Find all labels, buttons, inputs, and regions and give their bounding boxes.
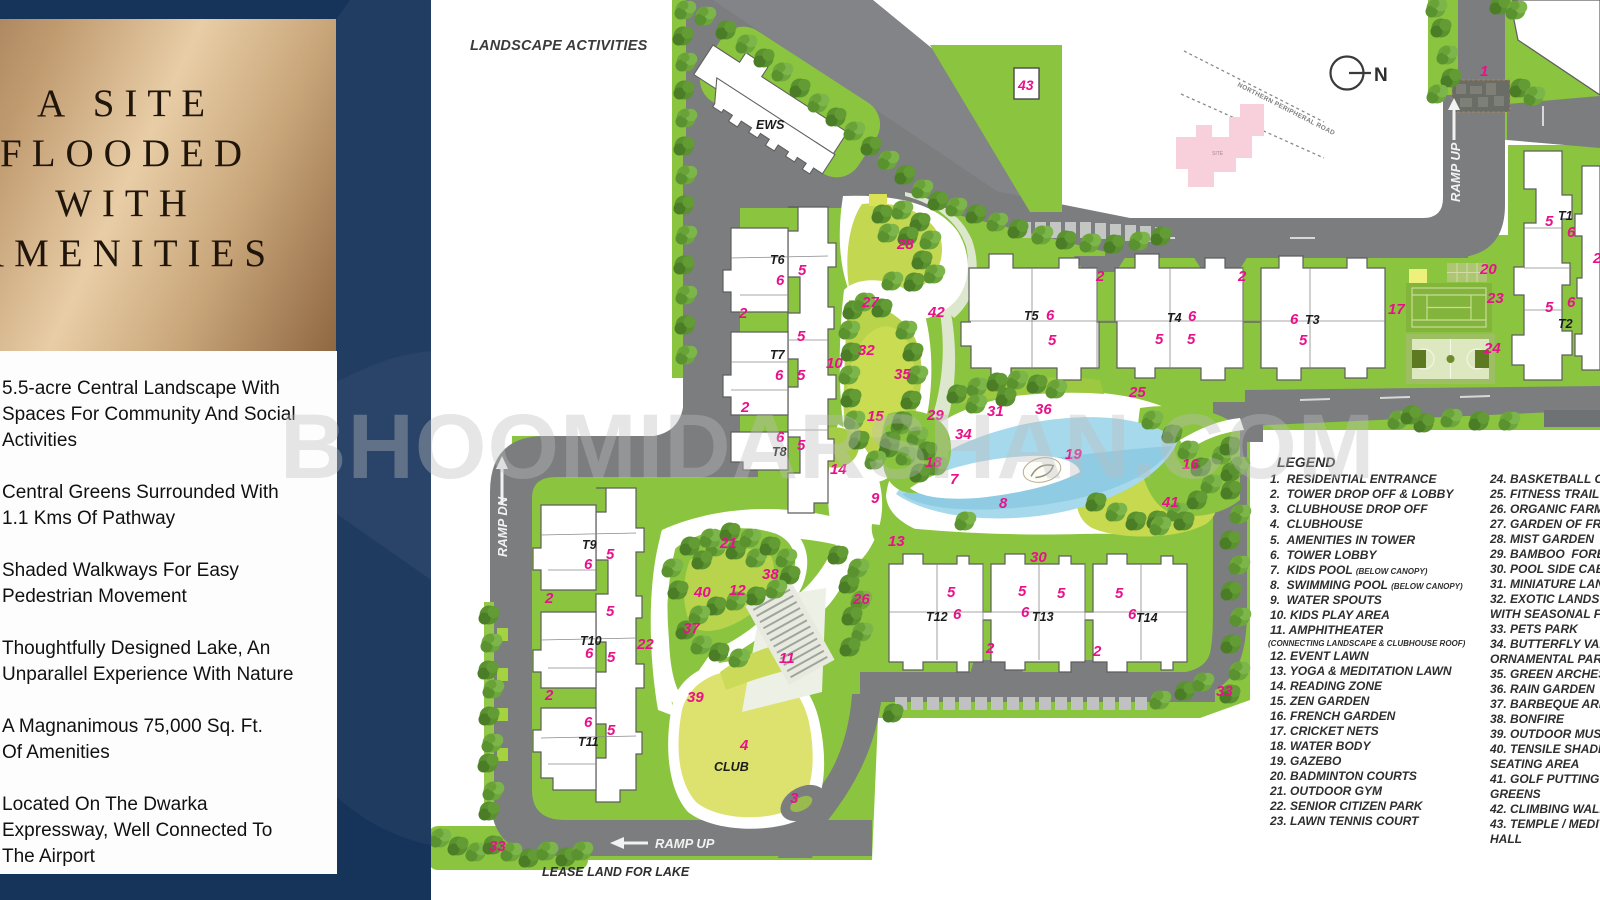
svg-text:2: 2 xyxy=(985,640,995,657)
svg-text:20. BADMINTON COURTS: 20. BADMINTON COURTS xyxy=(1269,769,1417,783)
svg-text:(CONNECTING LANDSCAPE & CLUBHO: (CONNECTING LANDSCAPE & CLUBHOUSE ROOF) xyxy=(1268,639,1466,648)
svg-text:16. FRENCH GARDEN: 16. FRENCH GARDEN xyxy=(1270,709,1396,723)
svg-text:ORNAMENTAL PARK: ORNAMENTAL PARK xyxy=(1490,652,1600,666)
svg-text:CLUB: CLUB xyxy=(714,760,749,774)
svg-text:32: 32 xyxy=(858,342,875,359)
svg-text:6. TOWER LOBBY: 6. TOWER LOBBY xyxy=(1270,548,1377,562)
svg-text:5: 5 xyxy=(1299,332,1308,349)
svg-text:RAMP DN: RAMP DN xyxy=(495,496,510,557)
svg-text:HALL: HALL xyxy=(1490,832,1522,846)
svg-text:T6: T6 xyxy=(770,253,786,267)
svg-text:23. LAWN TENNIS COURT: 23. LAWN TENNIS COURT xyxy=(1269,814,1420,828)
svg-text:5: 5 xyxy=(1545,299,1554,316)
svg-text:35. GREEN ARCHES: 35. GREEN ARCHES xyxy=(1490,667,1600,681)
svg-text:EWS: EWS xyxy=(756,118,785,132)
svg-text:36. RAIN GARDEN: 36. RAIN GARDEN xyxy=(1490,682,1595,696)
svg-text:17: 17 xyxy=(1388,301,1405,318)
svg-text:38. BONFIRE: 38. BONFIRE xyxy=(1490,712,1565,726)
svg-text:31. MINIATURE LANDSCAPE: 31. MINIATURE LANDSCAPE xyxy=(1490,577,1600,591)
svg-text:40: 40 xyxy=(693,584,711,601)
svg-text:5: 5 xyxy=(797,328,806,345)
svg-text:T9: T9 xyxy=(582,538,597,552)
svg-text:23: 23 xyxy=(1486,290,1504,307)
svg-text:6: 6 xyxy=(585,645,594,662)
svg-text:7. KIDS POOL (BELOW CANOPY): 7. KIDS POOL (BELOW CANOPY) xyxy=(1270,563,1428,577)
svg-text:21. OUTDOOR GYM: 21. OUTDOOR GYM xyxy=(1269,784,1383,798)
svg-text:T7: T7 xyxy=(770,348,786,362)
svg-text:3. CLUBHOUSE DROP OFF: 3. CLUBHOUSE DROP OFF xyxy=(1270,502,1428,516)
svg-text:2: 2 xyxy=(1092,643,1102,660)
svg-text:T4: T4 xyxy=(1167,311,1182,325)
svg-text:5: 5 xyxy=(1018,583,1027,600)
svg-text:GREENS: GREENS xyxy=(1490,787,1541,801)
svg-text:1: 1 xyxy=(1480,63,1488,80)
svg-text:13. YOGA & MEDITATION LAWN: 13. YOGA & MEDITATION LAWN xyxy=(1270,664,1452,678)
svg-text:14. READING ZONE: 14. READING ZONE xyxy=(1270,679,1383,693)
svg-text:5: 5 xyxy=(1155,331,1164,348)
svg-text:28: 28 xyxy=(896,236,914,253)
svg-text:24. BASKETBALL COURT: 24. BASKETBALL COURT xyxy=(1489,472,1600,486)
svg-text:24: 24 xyxy=(1483,340,1501,357)
svg-text:33. PETS PARK: 33. PETS PARK xyxy=(1490,622,1579,636)
svg-text:2: 2 xyxy=(1237,268,1247,285)
svg-text:8. SWIMMING POOL (BELOW CANOP: 8. SWIMMING POOL (BELOW CANOPY) xyxy=(1270,578,1463,592)
svg-text:25. FITNESS TRAIL: 25. FITNESS TRAIL xyxy=(1489,487,1599,501)
svg-text:33: 33 xyxy=(1216,683,1233,700)
svg-text:5: 5 xyxy=(1057,585,1066,602)
svg-text:N: N xyxy=(1374,65,1388,86)
svg-text:6: 6 xyxy=(1188,308,1197,325)
svg-text:4. CLUBHOUSE: 4. CLUBHOUSE xyxy=(1269,517,1364,531)
svg-text:5: 5 xyxy=(606,546,615,563)
svg-text:22: 22 xyxy=(636,636,654,653)
svg-text:12. EVENT LAWN: 12. EVENT LAWN xyxy=(1270,649,1369,663)
svg-text:6: 6 xyxy=(1128,606,1137,623)
svg-text:38: 38 xyxy=(762,566,779,583)
svg-text:6: 6 xyxy=(775,367,784,384)
svg-text:RAMP UP: RAMP UP xyxy=(1448,142,1463,202)
svg-text:4: 4 xyxy=(739,737,749,754)
svg-text:9. WATER SPOUTS: 9. WATER SPOUTS xyxy=(1270,593,1382,607)
svg-text:21: 21 xyxy=(719,535,737,552)
svg-text:LEASE LAND FOR LAKE: LEASE LAND FOR LAKE xyxy=(542,865,690,879)
svg-text:5: 5 xyxy=(606,603,615,620)
svg-text:30. POOL SIDE CABANA: 30. POOL SIDE CABANA xyxy=(1490,562,1600,576)
svg-text:5: 5 xyxy=(947,584,956,601)
svg-text:22. SENIOR CITIZEN PARK: 22. SENIOR CITIZEN PARK xyxy=(1269,799,1424,813)
svg-text:2: 2 xyxy=(738,305,748,322)
svg-text:42. CLIMBING WALL: 42. CLIMBING WALL xyxy=(1489,802,1600,816)
svg-text:39. OUTDOOR MUSIC: 39. OUTDOOR MUSIC xyxy=(1490,727,1600,741)
svg-text:41. GOLF PUTTING: 41. GOLF PUTTING xyxy=(1489,772,1599,786)
svg-text:SITE: SITE xyxy=(1212,151,1224,157)
svg-text:19. GAZEBO: 19. GAZEBO xyxy=(1270,754,1342,768)
svg-text:32. EXOTIC LANDSCAPE: 32. EXOTIC LANDSCAPE xyxy=(1490,592,1600,606)
svg-text:6: 6 xyxy=(776,272,785,289)
svg-text:40. TENSILE SHADE: 40. TENSILE SHADE xyxy=(1489,742,1600,756)
svg-text:10. KIDS PLAY AREA: 10. KIDS PLAY AREA xyxy=(1270,608,1390,622)
svg-text:5: 5 xyxy=(1187,331,1196,348)
svg-text:5: 5 xyxy=(798,262,807,279)
svg-text:26. ORGANIC FARMING: 26. ORGANIC FARMING xyxy=(1489,502,1600,516)
svg-text:T5: T5 xyxy=(1024,309,1040,323)
svg-text:6: 6 xyxy=(953,606,962,623)
svg-text:39: 39 xyxy=(687,689,704,706)
svg-text:20: 20 xyxy=(1479,261,1497,278)
svg-text:2: 2 xyxy=(1592,250,1600,267)
svg-text:42: 42 xyxy=(927,304,945,321)
svg-text:6: 6 xyxy=(584,714,593,731)
svg-text:26: 26 xyxy=(852,591,870,608)
svg-text:RAMP UP: RAMP UP xyxy=(655,836,715,851)
svg-text:T2: T2 xyxy=(1558,317,1573,331)
svg-text:35: 35 xyxy=(894,366,911,383)
svg-text:5: 5 xyxy=(607,722,616,739)
svg-text:11: 11 xyxy=(779,650,795,667)
svg-text:2: 2 xyxy=(544,687,554,704)
svg-text:18. WATER BODY: 18. WATER BODY xyxy=(1270,739,1371,753)
svg-text:30: 30 xyxy=(1030,549,1047,566)
svg-text:6: 6 xyxy=(584,556,593,573)
svg-text:T11: T11 xyxy=(578,735,599,749)
svg-text:15. ZEN GARDEN: 15. ZEN GARDEN xyxy=(1270,694,1370,708)
svg-text:2: 2 xyxy=(544,590,554,607)
svg-text:29. BAMBOO FOREST: 29. BAMBOO FOREST xyxy=(1489,547,1600,561)
svg-text:LANDSCAPE ACTIVITIES: LANDSCAPE ACTIVITIES xyxy=(470,38,648,54)
svg-text:11. AMPHITHEATER: 11. AMPHITHEATER xyxy=(1270,623,1383,637)
svg-text:17. CRICKET NETS: 17. CRICKET NETS xyxy=(1270,724,1379,738)
svg-text:WITH SEASONAL FLOWERS: WITH SEASONAL FLOWERS xyxy=(1490,607,1600,621)
svg-text:5: 5 xyxy=(1115,585,1124,602)
svg-text:5: 5 xyxy=(607,649,616,666)
svg-text:33: 33 xyxy=(489,838,506,855)
svg-text:37. BARBEQUE AREA: 37. BARBEQUE AREA xyxy=(1490,697,1600,711)
svg-text:T12: T12 xyxy=(926,610,948,624)
svg-text:10: 10 xyxy=(826,355,843,372)
svg-text:43. TEMPLE / MEDITATION: 43. TEMPLE / MEDITATION xyxy=(1489,817,1600,831)
svg-text:34. BUTTERFLY VALLEY: 34. BUTTERFLY VALLEY xyxy=(1490,637,1600,651)
svg-text:12: 12 xyxy=(729,582,746,599)
svg-text:5: 5 xyxy=(797,367,806,384)
svg-text:2: 2 xyxy=(1095,268,1105,285)
svg-text:27: 27 xyxy=(861,294,879,311)
svg-text:3: 3 xyxy=(790,790,799,807)
svg-text:T14: T14 xyxy=(1136,611,1158,625)
svg-text:43: 43 xyxy=(1017,77,1034,93)
svg-text:5: 5 xyxy=(1048,332,1057,349)
svg-text:T3: T3 xyxy=(1305,313,1320,327)
svg-text:T1: T1 xyxy=(1558,209,1573,223)
svg-text:6: 6 xyxy=(1021,604,1030,621)
svg-text:SEATING AREA: SEATING AREA xyxy=(1490,757,1579,771)
svg-text:6: 6 xyxy=(1567,224,1576,241)
svg-text:T13: T13 xyxy=(1032,610,1054,624)
svg-text:28. MIST GARDEN: 28. MIST GARDEN xyxy=(1489,532,1594,546)
svg-text:27. GARDEN OF FRAGRANCE: 27. GARDEN OF FRAGRANCE xyxy=(1489,517,1600,531)
svg-text:5. AMENITIES IN TOWER: 5. AMENITIES IN TOWER xyxy=(1270,533,1415,547)
svg-text:6: 6 xyxy=(1290,311,1299,328)
svg-text:6: 6 xyxy=(1567,294,1576,311)
svg-text:13: 13 xyxy=(888,533,905,550)
svg-text:5: 5 xyxy=(1545,213,1554,230)
svg-text:37: 37 xyxy=(683,620,700,637)
svg-text:6: 6 xyxy=(1046,307,1055,324)
